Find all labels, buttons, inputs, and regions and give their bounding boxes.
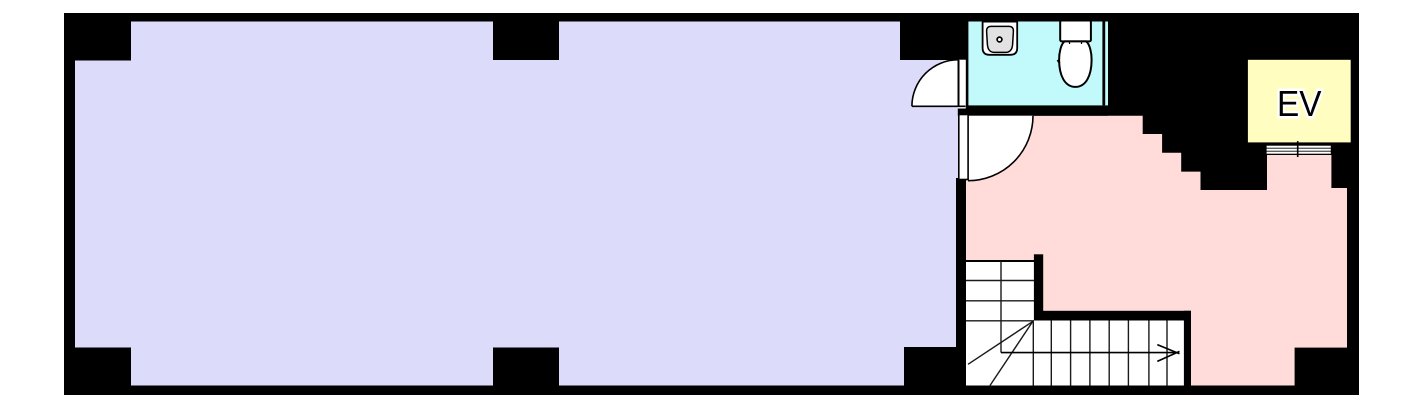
svg-text:EV: EV: [1277, 83, 1322, 124]
